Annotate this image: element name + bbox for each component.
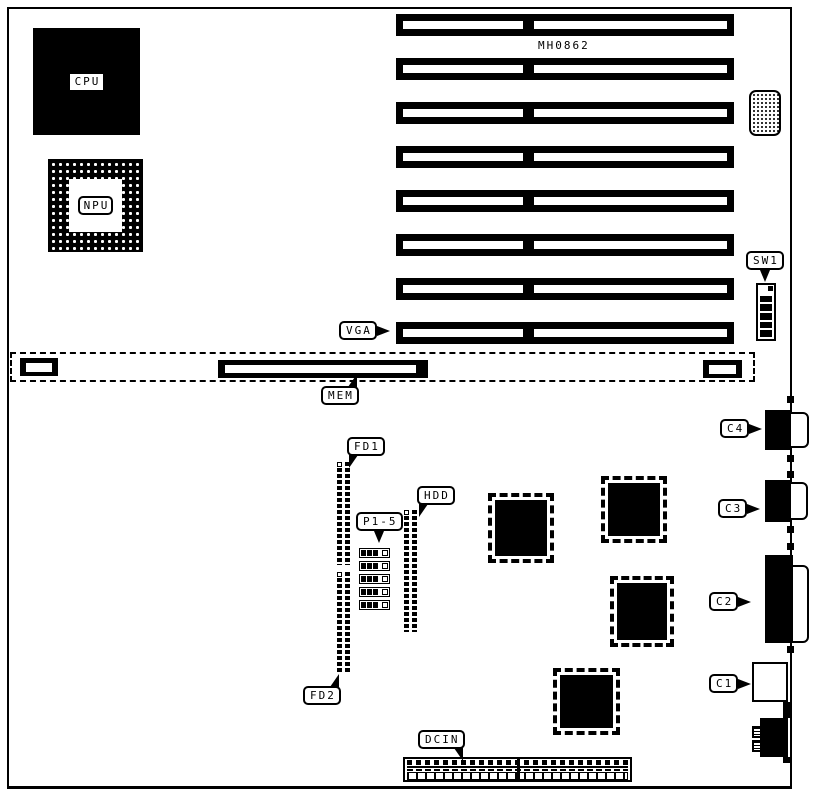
qfp-chip-4 (553, 668, 620, 735)
motherboard-diagram: CPU NPU MH0862 SW1 VGA MEM FD1 FD2 P1-5 (0, 0, 813, 797)
qfp-chip-3 (610, 576, 674, 647)
jumper-pin (367, 563, 372, 569)
jumper-open-pin (382, 550, 388, 556)
port-c3-shell (789, 482, 808, 520)
p1-5-label: P1-5 (363, 515, 398, 528)
mini-jack-2 (752, 740, 762, 752)
expansion-slot (396, 58, 734, 80)
expansion-slot (396, 146, 734, 168)
edge-dot (787, 543, 794, 550)
npu-chip-body: NPU (69, 179, 122, 232)
hdd-label-callout: HDD (417, 486, 455, 505)
vga-label: VGA (346, 324, 372, 337)
fd1-pin-header (337, 462, 350, 565)
jumper-block (359, 587, 390, 597)
memory-module-right (703, 360, 742, 378)
dcin-label: DCIN (425, 733, 460, 746)
sw1-label-callout: SW1 (746, 251, 784, 270)
jumper-open-pin (382, 576, 388, 582)
dip-switch-cell (760, 296, 772, 303)
port-c2 (765, 555, 793, 643)
expansion-slot (396, 190, 734, 212)
edge-dot (787, 526, 794, 533)
mem-label-callout: MEM (321, 386, 359, 405)
jumper-open-pin (382, 563, 388, 569)
port-c4 (765, 410, 791, 450)
expansion-slot (396, 278, 734, 300)
memory-module-center (218, 360, 428, 378)
dip-switch-cell (760, 322, 772, 329)
expansion-slot (396, 322, 734, 344)
jumper-pin (373, 550, 378, 556)
c2-label: C2 (716, 595, 733, 608)
jumper-open-pin (382, 589, 388, 595)
jumper-pin (367, 550, 372, 556)
edge-step (783, 757, 790, 763)
jumper-pin (361, 589, 366, 595)
board-model-text: MH0862 (538, 39, 590, 52)
c4-label-callout: C4 (720, 419, 749, 438)
c3-label: C3 (725, 502, 742, 515)
dip-switch-sw1 (756, 283, 776, 341)
edge-step (783, 702, 790, 718)
jumper-open-pin (382, 602, 388, 608)
jumper-pin (373, 576, 378, 582)
jumper-pin (373, 602, 378, 608)
cpu-chip: CPU (33, 28, 140, 135)
npu-label: NPU (78, 196, 114, 215)
dip-switch-cell (760, 330, 772, 337)
jumper-pin (361, 550, 366, 556)
port-c3 (765, 480, 791, 522)
jumper-pin (361, 576, 366, 582)
edge-dot (787, 455, 794, 462)
qfp-chip-2 (601, 476, 667, 543)
dotted-component (749, 90, 781, 136)
npu-chip: NPU (48, 159, 143, 252)
c4-label: C4 (727, 422, 744, 435)
jumper-pin (361, 563, 366, 569)
jumper-pin (361, 602, 366, 608)
mem-label: MEM (328, 389, 354, 402)
fd1-label-callout: FD1 (347, 437, 385, 456)
qfp-chip-1 (488, 493, 554, 563)
edge-dot (787, 471, 794, 478)
hdd-pin-header (404, 510, 417, 632)
fd2-label-callout: FD2 (303, 686, 341, 705)
memory-module-left (20, 358, 58, 376)
dip-switch-cell (760, 304, 772, 311)
fd1-label: FD1 (354, 440, 380, 453)
vga-label-callout: VGA (339, 321, 377, 340)
jumper-pin (367, 589, 372, 595)
cpu-label: CPU (70, 74, 104, 90)
hdd-label: HDD (424, 489, 450, 502)
expansion-slot (396, 102, 734, 124)
dcin-connector (403, 757, 632, 782)
jumper-block (359, 600, 390, 610)
jumper-pin (373, 589, 378, 595)
expansion-slot (396, 14, 734, 36)
c2-label-callout: C2 (709, 592, 738, 611)
fd2-label: FD2 (310, 689, 336, 702)
dcin-divider (517, 759, 520, 780)
dip-switch-cell (760, 313, 772, 320)
jumper-block (359, 574, 390, 584)
bottom-port (760, 718, 788, 757)
expansion-slot (396, 234, 734, 256)
dcin-label-callout: DCIN (418, 730, 465, 749)
edge-dot (787, 646, 794, 653)
edge-dot (787, 396, 794, 403)
port-c4-shell (789, 412, 809, 448)
p1-5-label-callout: P1-5 (356, 512, 403, 531)
mini-jack-1 (752, 726, 762, 738)
sw1-label: SW1 (753, 254, 779, 267)
port-c1 (752, 662, 788, 702)
jumper-pin (367, 576, 372, 582)
c1-label-callout: C1 (709, 674, 738, 693)
c1-label: C1 (716, 677, 733, 690)
jumper-pin (367, 602, 372, 608)
fd2-pin-header (337, 572, 350, 673)
jumper-pin (373, 563, 378, 569)
port-c2-shell (791, 565, 809, 643)
dip-switch-cell (760, 287, 772, 294)
jumper-block (359, 561, 390, 571)
c3-label-callout: C3 (718, 499, 747, 518)
jumper-block (359, 548, 390, 558)
